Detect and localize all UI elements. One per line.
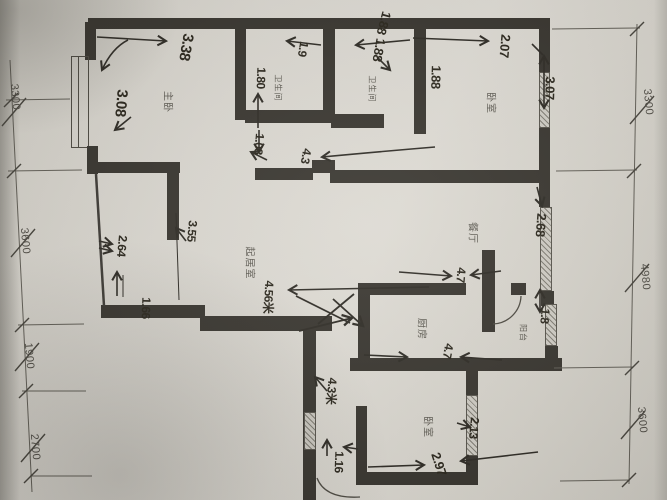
window-master-bedroom	[71, 56, 89, 148]
dimension-label-right-1: 4980	[638, 263, 652, 290]
dimension-label-right-2: 3600	[635, 406, 649, 433]
annotation-bath1-note: 1.9	[295, 40, 311, 57]
dimension-label-left-2: 1900	[22, 342, 36, 369]
wall-balcony-door-stub	[511, 283, 526, 295]
dimension-label-left-3: 2700	[28, 433, 42, 460]
dimension-ticks-left	[2, 93, 45, 483]
annotation-master-height: 3.08	[111, 89, 130, 118]
room-label-bedroom-bottom: 卧室	[422, 416, 437, 438]
annotation-bedroom-top-width: 2.07	[497, 34, 514, 59]
annotation-corridor-width: 1.16	[332, 451, 347, 473]
annotation-dining-width: 4.7	[453, 267, 468, 283]
wall-outer-right-upper	[539, 18, 550, 72]
wall-balcony-door-jamb	[482, 250, 495, 332]
room-label-bathroom-2: 卫生间	[367, 76, 378, 103]
annotation-living-corner: 1.66	[139, 297, 154, 319]
annotation-living-width: 4.56米	[260, 280, 279, 314]
wall-outer-top	[88, 18, 548, 29]
room-label-bathroom-1: 卫生间	[273, 75, 284, 102]
wall-bath1-bottom	[245, 110, 331, 123]
annotation-kitchen-width: 4.7	[440, 342, 456, 359]
annotation-master-width: 3.38	[175, 32, 196, 62]
room-label-balcony: 阳台	[518, 324, 529, 342]
room-label-living: 起居室	[244, 247, 259, 280]
wall-hall-a	[255, 168, 313, 180]
wall-living-bottom-b	[200, 316, 332, 331]
annotation-living-wall: 3.55	[184, 220, 200, 242]
annotation-bath2-depth: 1.88	[428, 65, 444, 89]
wall-bedroom2-left	[356, 406, 367, 476]
annotation-top-note: 1.88	[374, 10, 395, 36]
dimension-chain-right	[552, 24, 640, 484]
annotation-balcony-width: 1.8	[537, 308, 552, 324]
annotation-bath1-width: 1.80	[254, 67, 269, 89]
wall-master-left-top	[85, 22, 96, 60]
wall-left-lower-line	[96, 174, 104, 306]
wall-hall-b	[330, 170, 548, 183]
annotation-bedroom-bottom-depth: 2.13	[466, 417, 482, 439]
wall-bath2-bedroom-divider	[414, 22, 426, 134]
wall-bath1-bath2-divider	[323, 22, 335, 122]
wall-kitchen-top	[358, 283, 466, 295]
door-swing-arc-balcony	[493, 296, 521, 324]
door-swing-arc-entry	[317, 478, 360, 497]
wall-living-stub	[167, 170, 179, 240]
floor-plan-photo: 主卧 卫生间 卫生间 卧室 餐厅 起居室 厨房 阳台 卧室 3300 3600 …	[0, 0, 667, 500]
annotation-dining-depth: 2.68	[533, 213, 550, 237]
room-label-master-bedroom: 主卧	[162, 91, 177, 113]
room-label-bedroom-top: 卧室	[485, 92, 500, 114]
annotation-hall-width: 4.3	[298, 147, 314, 164]
dimension-label-left-0: 3300	[8, 83, 22, 110]
annotation-living-left: 2.64	[114, 235, 130, 257]
wall-master-bath1-divider	[235, 22, 246, 120]
dimension-label-left-1: 3600	[18, 227, 32, 254]
annotation-bedroom-top-depth: 3.07	[542, 76, 558, 100]
wall-kitchen-left	[358, 283, 370, 370]
room-label-dining: 餐厅	[467, 222, 482, 244]
wall-bedroom2-right-a	[466, 369, 478, 395]
dimension-label-right-0: 3300	[641, 88, 655, 115]
wall-bedroom2-bottom	[356, 472, 478, 485]
wall-outer-right-mid	[539, 128, 550, 207]
window-hatch-corridor	[304, 412, 316, 450]
room-label-kitchen: 厨房	[416, 318, 431, 340]
wall-bath2-bottom	[331, 114, 384, 128]
annotation-bath1-door: 1.08	[251, 133, 267, 155]
annotation-corridor-length: 4.3米	[322, 377, 341, 405]
wall-kitchen-bottom	[350, 358, 562, 371]
annotation-bath2-width: 1.88	[370, 37, 389, 63]
